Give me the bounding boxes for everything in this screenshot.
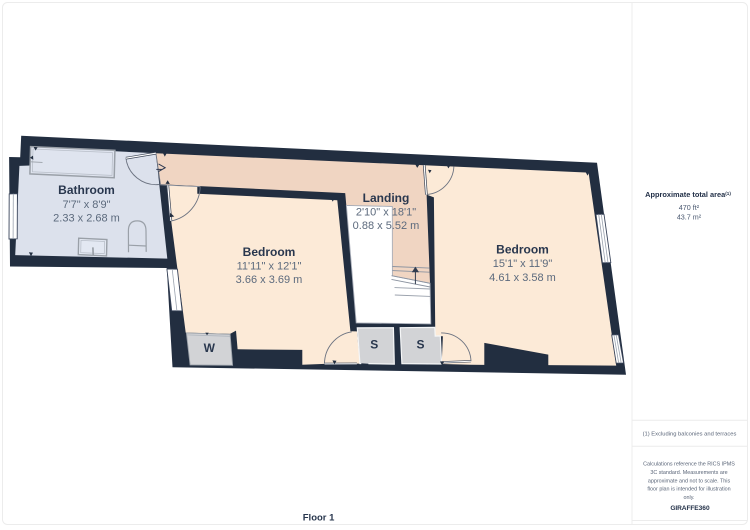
svg-text:W: W xyxy=(204,341,216,355)
svg-text:43.7 m²: 43.7 m² xyxy=(677,213,702,222)
svg-text:Calculations reference the RIC: Calculations reference the RICS IPMS xyxy=(643,462,735,468)
svg-text:7'7" x 8'9": 7'7" x 8'9" xyxy=(62,199,110,211)
svg-text:only.: only. xyxy=(684,495,695,501)
svg-text:3.66 x 3.69 m: 3.66 x 3.69 m xyxy=(236,274,303,286)
svg-text:(1) Excluding balconies and te: (1) Excluding balconies and terraces xyxy=(643,432,737,438)
svg-text:Bedroom: Bedroom xyxy=(496,242,549,256)
svg-text:S: S xyxy=(370,338,378,352)
svg-text:floor plan is intended for ill: floor plan is intended for illustration xyxy=(647,487,730,493)
svg-text:approximate and not to scale.: approximate and not to scale. This xyxy=(648,478,731,484)
svg-text:GIRAFFE360: GIRAFFE360 xyxy=(670,505,710,512)
svg-text:S: S xyxy=(416,338,424,352)
svg-text:3C standard. Measurements are: 3C standard. Measurements are xyxy=(650,470,727,476)
svg-text:Landing: Landing xyxy=(363,191,410,205)
svg-text:2.33 x 2.68 m: 2.33 x 2.68 m xyxy=(53,213,120,225)
svg-text:470 ft²: 470 ft² xyxy=(679,203,700,212)
svg-text:11'11" x 12'1": 11'11" x 12'1" xyxy=(237,261,302,273)
svg-text:Floor 1: Floor 1 xyxy=(303,512,335,523)
svg-text:Approximate total area(1): Approximate total area(1) xyxy=(645,190,731,199)
svg-text:4.61 x 3.58 m: 4.61 x 3.58 m xyxy=(489,272,556,284)
svg-text:Bedroom: Bedroom xyxy=(243,245,296,259)
svg-text:2'10" x 18'1": 2'10" x 18'1" xyxy=(356,207,416,219)
svg-text:15'1" x 11'9": 15'1" x 11'9" xyxy=(493,258,553,270)
svg-text:0.88 x 5.52 m: 0.88 x 5.52 m xyxy=(353,220,420,232)
svg-text:Bathroom: Bathroom xyxy=(58,183,115,197)
